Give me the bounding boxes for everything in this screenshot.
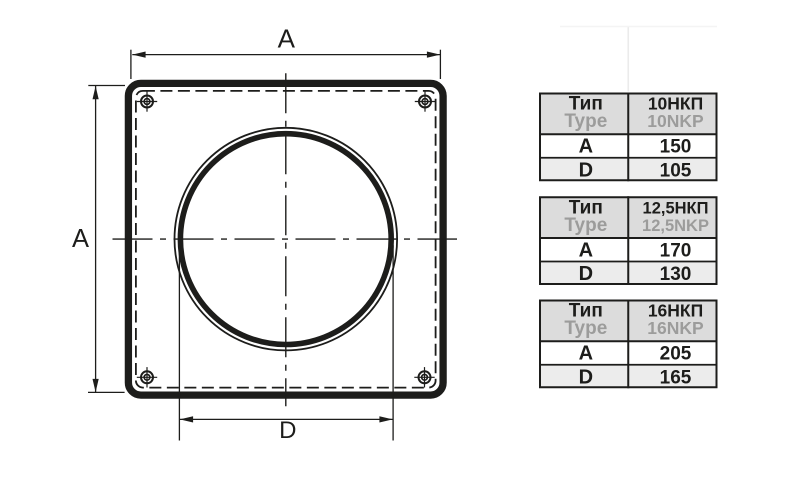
svg-text:D: D <box>279 417 296 444</box>
svg-text:A: A <box>72 225 89 253</box>
svg-text:170: 170 <box>660 240 692 261</box>
svg-text:A: A <box>579 343 593 365</box>
svg-text:12,5NKP: 12,5NKP <box>642 217 709 235</box>
svg-text:A: A <box>579 239 593 261</box>
svg-text:D: D <box>579 263 593 285</box>
svg-text:205: 205 <box>660 344 692 365</box>
svg-text:Type: Type <box>564 318 607 339</box>
svg-text:D: D <box>579 366 593 388</box>
svg-text:Type: Type <box>564 215 607 236</box>
svg-text:16NKP: 16NKP <box>647 318 704 338</box>
svg-text:Type: Type <box>564 111 607 132</box>
svg-text:D: D <box>579 159 593 181</box>
svg-text:165: 165 <box>660 367 692 388</box>
svg-text:12,5НКП: 12,5НКП <box>643 199 709 217</box>
svg-text:10NKP: 10NKP <box>647 111 704 131</box>
svg-text:A: A <box>278 24 296 54</box>
svg-text:130: 130 <box>660 264 692 285</box>
svg-text:150: 150 <box>660 137 692 158</box>
svg-text:A: A <box>579 136 593 158</box>
svg-text:105: 105 <box>660 160 692 181</box>
